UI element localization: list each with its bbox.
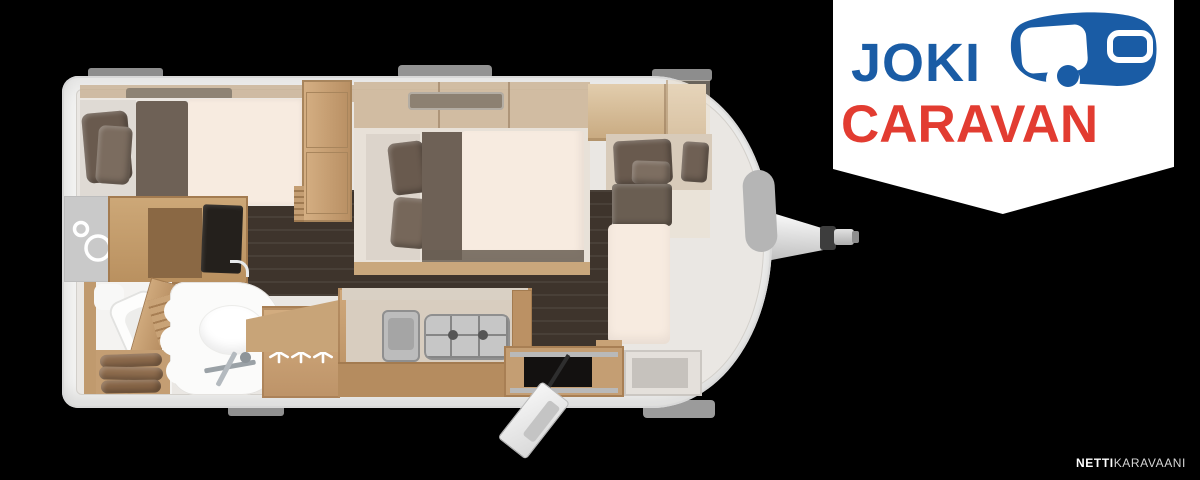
dealer-logo-badge: JOKI CARAVAN <box>833 0 1174 214</box>
gas-hob <box>424 314 510 360</box>
seat-backrest <box>612 184 672 226</box>
tv-cabinet-recess <box>148 208 202 278</box>
watermark-bold: NETTI <box>1076 456 1114 470</box>
washbasin-counter <box>160 326 190 356</box>
bed-mattress <box>608 224 670 344</box>
pillow <box>95 125 133 185</box>
seat-front-recess <box>632 358 688 388</box>
ladder <box>294 186 304 222</box>
pillow <box>681 141 710 183</box>
bench-cushion <box>99 366 163 380</box>
faucet-head <box>240 352 251 363</box>
door-step-edge <box>510 388 618 393</box>
watermark-light: KARAVAANI <box>1114 456 1186 470</box>
wardrobe-door-panel <box>306 152 348 214</box>
hob-burner <box>448 330 458 340</box>
kitchen-sink-bowl <box>388 318 414 350</box>
bed-blanket <box>136 101 188 205</box>
logo-word-joki: JOKI <box>851 36 981 90</box>
washbasin-counter <box>166 358 192 384</box>
logo-word-caravan: CARAVAN <box>841 98 1098 151</box>
window <box>408 92 504 110</box>
caravan-icon <box>997 6 1167 101</box>
kitchen-drawer-front <box>338 362 532 397</box>
hitch-tip <box>834 229 854 245</box>
site-watermark: NETTIKARAVAANI <box>1076 456 1186 470</box>
bed-footboard <box>354 262 590 275</box>
pillow <box>632 160 671 184</box>
bed-frame-shadow <box>422 250 584 262</box>
kitchen-backsplash <box>342 288 528 300</box>
locker-divider <box>508 82 510 130</box>
front-locker-panel <box>742 169 778 253</box>
caravan-floorplan-advert: JOKI CARAVAN NETTIKARAVAANI <box>0 0 1200 480</box>
wardrobe-door-panel <box>306 92 348 148</box>
bed-blanket <box>422 132 462 260</box>
bench-cushion <box>101 379 161 393</box>
hob-burner <box>478 330 488 340</box>
bed-mattress <box>462 131 584 259</box>
bed-mattress <box>188 99 306 205</box>
washbasin-counter <box>164 298 190 324</box>
hitch-tip-end <box>852 231 859 243</box>
